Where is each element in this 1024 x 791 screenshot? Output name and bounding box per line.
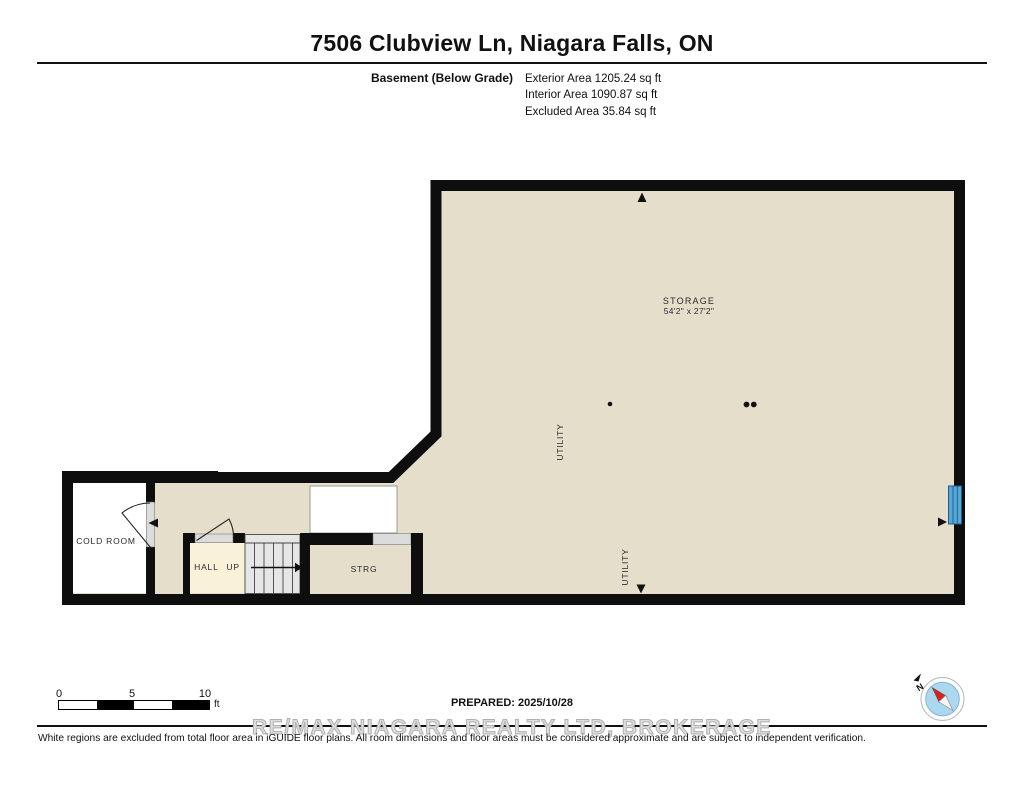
floorplan-drawing [0, 0, 1024, 791]
storage-room-label: STORAGE [663, 296, 715, 306]
strg-label: STRG [351, 564, 378, 574]
cold-room-wall [146, 547, 155, 600]
utility-label-upper: UTILITY [555, 423, 565, 460]
cold-room-label: COLD ROOM [76, 536, 136, 546]
utility-label-lower: UTILITY [620, 548, 630, 585]
strg-wall [300, 533, 310, 600]
floorplan-page: 7506 Clubview Ln, Niagara Falls, ON Base… [0, 0, 1024, 791]
support-column-dot [751, 402, 757, 408]
cold-room-wall [146, 477, 155, 503]
disclaimer-text: White regions are excluded from total fl… [38, 733, 866, 744]
excluded-region [310, 486, 397, 533]
wall-segment [62, 471, 218, 481]
support-column-dot [744, 402, 750, 408]
hall-wall [183, 533, 190, 595]
prepared-date: PREPARED: 2025/10/28 [0, 697, 1024, 709]
storage-dimensions: 54'2" x 27'2" [664, 306, 715, 316]
support-column-dot [608, 402, 613, 407]
north-arrow-icon [914, 674, 922, 682]
strg-door-opening [373, 534, 411, 545]
hall-wall [233, 533, 245, 543]
strg-wall [310, 533, 373, 545]
strg-wall [411, 533, 423, 600]
hall-up-label: HALL UP [194, 562, 240, 572]
window-marker [949, 486, 962, 524]
